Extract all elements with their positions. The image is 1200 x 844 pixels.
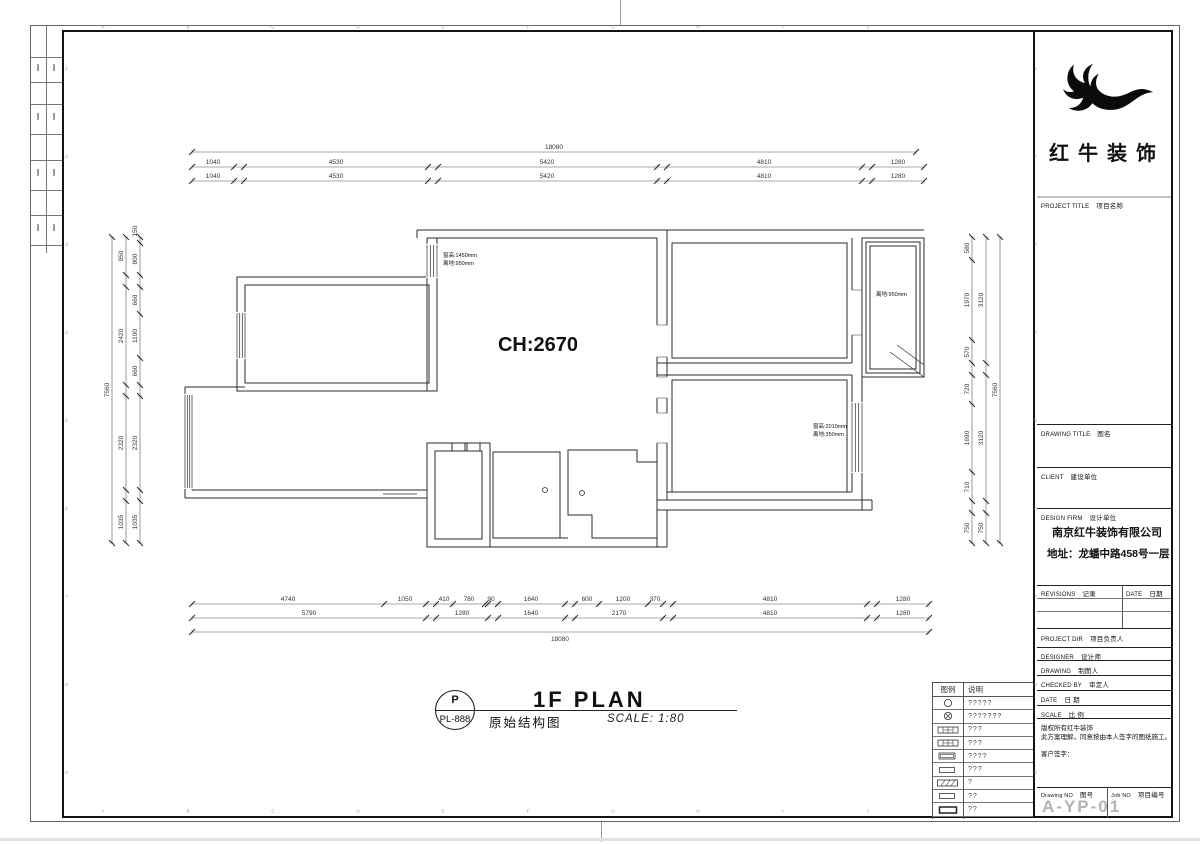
dim-text: 720 <box>964 383 971 394</box>
dim-text: 3120 <box>978 292 985 307</box>
tb-line <box>1037 705 1171 706</box>
tb-vline <box>1122 585 1123 628</box>
grid-ref-number: 5 <box>1034 418 1037 423</box>
plan-subtitle: 原始结构图 <box>489 712 562 731</box>
legend-desc: ????? <box>963 700 992 707</box>
dim-text: 4740 <box>281 596 296 603</box>
dim-text: 1280 <box>455 610 470 617</box>
label-zh: 日 期 <box>1064 697 1079 704</box>
client-signature-label: 客户签字： <box>1041 748 1074 758</box>
label-en: CLIENT <box>1041 475 1064 481</box>
dim-text: 2320 <box>132 435 139 450</box>
firm-address: 地址：龙蟠中路458号一层 <box>1047 546 1170 561</box>
rect-symbol-icon <box>938 765 958 775</box>
dim-text: 950 <box>118 250 125 261</box>
label-en: PROJECT TITLE <box>1041 204 1089 210</box>
legend-desc: ??? <box>963 726 983 733</box>
window-annotation: 离地:350mm <box>813 430 844 438</box>
dim-text: 18080 <box>551 636 569 643</box>
dim-text: 570 <box>964 346 971 357</box>
revisions-label: REVISIONS记录 <box>1041 588 1096 598</box>
grid-ref-letter: F <box>527 25 530 30</box>
grid-ref-letter: H <box>696 809 699 814</box>
dim-text: 1035 <box>132 514 139 529</box>
track-symbol-icon <box>937 738 959 748</box>
legend-row: ????? <box>933 697 1033 710</box>
legend-row: ?? <box>933 803 1033 816</box>
legend-desc: ?? <box>963 793 978 800</box>
label-zh: 图名 <box>1097 431 1110 438</box>
grid-ref-letter: D <box>356 25 360 30</box>
dim-text: 1970 <box>964 292 971 307</box>
grid-ref-number: 7 <box>65 594 68 599</box>
dim-text: 150 <box>132 225 139 236</box>
label-en: DRAWING TITLE <box>1041 432 1090 438</box>
stamp-letter: P <box>441 694 469 706</box>
grid-ref-number: 9 <box>1034 770 1037 775</box>
dim-text: 2420 <box>118 328 125 343</box>
dim-text: 18080 <box>545 144 563 151</box>
grid-ref-letter: G <box>611 25 615 30</box>
dim-text: 4810 <box>763 610 778 617</box>
grid-ref-number: 4 <box>1034 330 1037 335</box>
tb-line <box>1037 467 1171 468</box>
legend-row: ??? <box>933 763 1033 776</box>
dot-symbol-icon <box>938 818 958 819</box>
legend-header: 图例 说明 <box>933 683 1033 697</box>
grid-ref-number: 1 <box>65 66 68 71</box>
plan-title: 1F PLAN <box>533 687 646 713</box>
label-zh: 记录 <box>1082 591 1095 598</box>
tb-line <box>1037 787 1171 788</box>
grid-ref-number: 3 <box>1034 242 1037 247</box>
logo-icon <box>1062 58 1154 130</box>
grid-ref-number: 6 <box>65 506 68 511</box>
grid-ref-number: 2 <box>65 154 68 159</box>
grid-ref-letter: A <box>101 25 104 30</box>
dim-text: 600 <box>582 596 593 603</box>
dim-text: 660 <box>132 294 139 305</box>
grid-ref-number: 3 <box>65 242 68 247</box>
dim-text: 1690 <box>964 430 971 445</box>
dim-text: 4810 <box>757 173 772 180</box>
date-label: DATE日 期 <box>1041 694 1080 704</box>
grid-ref-letter: E <box>441 25 444 30</box>
grid-ref-letter: G <box>611 809 615 814</box>
legend-row: ?? <box>933 790 1033 803</box>
dim-text: 4810 <box>757 159 772 166</box>
grid-ref-number: 9 <box>65 770 68 775</box>
grid-ref-number: 8 <box>65 682 68 687</box>
grid-ref-letter: B <box>186 25 189 30</box>
legend-table: 图例 说明 ????? ??????? ??? ??? ???? ??? <box>932 682 1033 819</box>
dim-text: 1040 <box>206 159 221 166</box>
label-zh: 审定人 <box>1089 682 1109 689</box>
legend-desc: ?? <box>963 806 978 813</box>
hatch-rect-symbol-icon <box>937 778 959 788</box>
grid-ref-number: 8 <box>1034 682 1037 687</box>
circle-symbol-icon <box>938 698 958 708</box>
tb-line <box>1037 718 1171 719</box>
grid-ref-letter: I <box>782 25 783 30</box>
grid-ref-letter: C <box>271 809 275 814</box>
label-zh: 设计单位 <box>1090 515 1117 522</box>
dim-text: 1280 <box>891 159 906 166</box>
label-en: DATE <box>1041 698 1057 704</box>
legend-row: ???? <box>933 817 1033 819</box>
firm-name: 南京红牛装饰有限公司 <box>1052 524 1162 540</box>
dim-text: 5420 <box>540 173 555 180</box>
plan-scale: SCALE: 1:80 <box>607 713 684 725</box>
label-zh: 项目名称 <box>1096 203 1123 210</box>
window-annotation: 窗高:2010mm <box>813 422 847 430</box>
grid-ref-letter: D <box>356 809 360 814</box>
dim-text: 1280 <box>891 173 906 180</box>
dim-text: 1640 <box>524 610 539 617</box>
date-col-label: DATE日期 <box>1126 588 1163 598</box>
client-label: CLIENT建设单位 <box>1041 471 1097 481</box>
dim-text: 7560 <box>992 382 999 397</box>
dim-text: 1280 <box>896 596 911 603</box>
dim-text: 1100 <box>132 329 139 343</box>
track-symbol-icon <box>937 725 959 735</box>
stamp-code: PL-888 <box>436 714 474 725</box>
grid-ref-number: 5 <box>65 418 68 423</box>
logo-text: 红牛装饰 <box>1037 137 1177 166</box>
tb-line <box>1037 424 1171 425</box>
legend-desc: ??????? <box>963 713 1002 720</box>
label-zh: 项目编号 <box>1138 792 1165 799</box>
grid-ref-letter: A <box>101 809 104 814</box>
grid-ref-letter: C <box>271 25 275 30</box>
grid-ref-letter: I <box>782 809 783 814</box>
dim-text: 1050 <box>398 596 413 603</box>
dim-text: 7560 <box>104 382 111 397</box>
grid-ref-letter: H <box>696 25 699 30</box>
legend-row: ? <box>933 777 1033 790</box>
design-firm-label: DESIGN FIRM设计单位 <box>1041 512 1116 522</box>
drawing-title-label: DRAWING TITLE图名 <box>1041 428 1111 438</box>
grid-ref-letter: E <box>441 809 444 814</box>
legend-row: ??? <box>933 737 1033 750</box>
legend-desc: ??? <box>963 766 983 773</box>
bold-rect-symbol-icon <box>938 805 958 815</box>
circle-cross-symbol-icon <box>938 711 958 721</box>
tb-line <box>1037 675 1171 676</box>
dim-text: 2170 <box>612 610 627 617</box>
label-en: CHECKED BY <box>1041 683 1082 689</box>
drawing-by-label: DRAWING制图人 <box>1041 665 1098 675</box>
grid-ref-number: 1 <box>1034 66 1037 71</box>
dim-text: 750 <box>978 522 985 533</box>
copyright-line2: 此方案理解，同意按由本人签字的图纸施工。 <box>1041 731 1171 741</box>
dim-text: 4530 <box>329 173 344 180</box>
legend-row: ??? <box>933 724 1033 737</box>
logo-divider <box>1037 196 1171 198</box>
balcony-annotation: 离地:950mm <box>876 290 907 298</box>
label-zh: 制图人 <box>1078 668 1098 675</box>
drawing-number: A-YP-01 <box>1042 797 1121 817</box>
dim-text: 800 <box>132 253 139 264</box>
plan-texts: CH:2670 窗高:1450mm 离地:950mm 离地:950mm 窗高:2… <box>443 251 907 438</box>
label-zh: 建设单位 <box>1071 474 1098 481</box>
tb-line <box>1037 598 1171 599</box>
dim-text: 370 <box>650 596 661 603</box>
legend-desc: ? <box>963 779 973 786</box>
drawing-sheet: CH:2670 窗高:1450mm 离地:950mm 离地:950mm 窗高:2… <box>0 0 1200 844</box>
rect-symbol-icon <box>938 791 958 801</box>
dim-text: 580 <box>964 242 971 253</box>
dim-text: 4810 <box>763 596 778 603</box>
tb-line <box>1037 647 1171 648</box>
grid-ref-letter: B <box>186 809 189 814</box>
plan-walls <box>185 230 924 547</box>
dim-text: 660 <box>132 365 139 376</box>
legend-row: ???? <box>933 750 1033 763</box>
dim-text: 2320 <box>118 435 125 450</box>
tb-line <box>1037 508 1171 509</box>
grid-ref-number: 4 <box>65 330 68 335</box>
dim-text: 90 <box>487 596 495 603</box>
dim-text: 1280 <box>896 610 911 617</box>
window-annotation: 离地:950mm <box>443 259 474 267</box>
dim-text: 4530 <box>329 159 344 166</box>
legend-divider <box>963 683 964 819</box>
dim-text: 410 <box>439 596 450 603</box>
grid-ref-letter: J <box>867 809 869 814</box>
tb-line <box>1037 628 1171 629</box>
window-annotation: 窗高:1450mm <box>443 251 477 259</box>
dim-text: 1035 <box>118 514 125 529</box>
legend-desc: ??? <box>963 740 983 747</box>
grid-ref-letter: J <box>867 25 869 30</box>
legend-header-symbol: 图例 <box>933 684 963 695</box>
project-title-label: PROJECT TITLE项目名称 <box>1041 200 1123 210</box>
dim-text: 1200 <box>616 596 631 603</box>
project-dir-label: PROJECT DIR项目负责人 <box>1041 633 1124 643</box>
label-zh: 日期 <box>1149 591 1162 598</box>
legend-row: ??????? <box>933 710 1033 723</box>
dim-text: 5790 <box>302 610 317 617</box>
dim-text: 710 <box>964 481 971 492</box>
legend-header-desc: 说明 <box>963 684 983 695</box>
tb-line <box>1037 690 1171 691</box>
dim-text: 3120 <box>978 430 985 445</box>
label-en: DESIGN FIRM <box>1041 516 1083 522</box>
dim-text: 1040 <box>206 173 221 180</box>
legend-desc: ???? <box>963 753 988 760</box>
ceiling-height-label: CH:2670 <box>498 334 578 356</box>
dim-text: 5420 <box>540 159 555 166</box>
tb-line <box>1037 611 1171 612</box>
tb-line <box>1037 585 1171 586</box>
dim-text: 1640 <box>524 596 539 603</box>
checked-by-label: CHECKED BY审定人 <box>1041 679 1109 689</box>
dim-text: 780 <box>464 596 475 603</box>
tb-line <box>1037 660 1171 661</box>
double-rect-symbol-icon <box>938 751 958 761</box>
label-zh: 项目负责人 <box>1090 636 1124 643</box>
grid-ref-letter: F <box>527 809 530 814</box>
dim-text: 750 <box>964 522 971 533</box>
label-en: PROJECT DIR <box>1041 637 1083 643</box>
